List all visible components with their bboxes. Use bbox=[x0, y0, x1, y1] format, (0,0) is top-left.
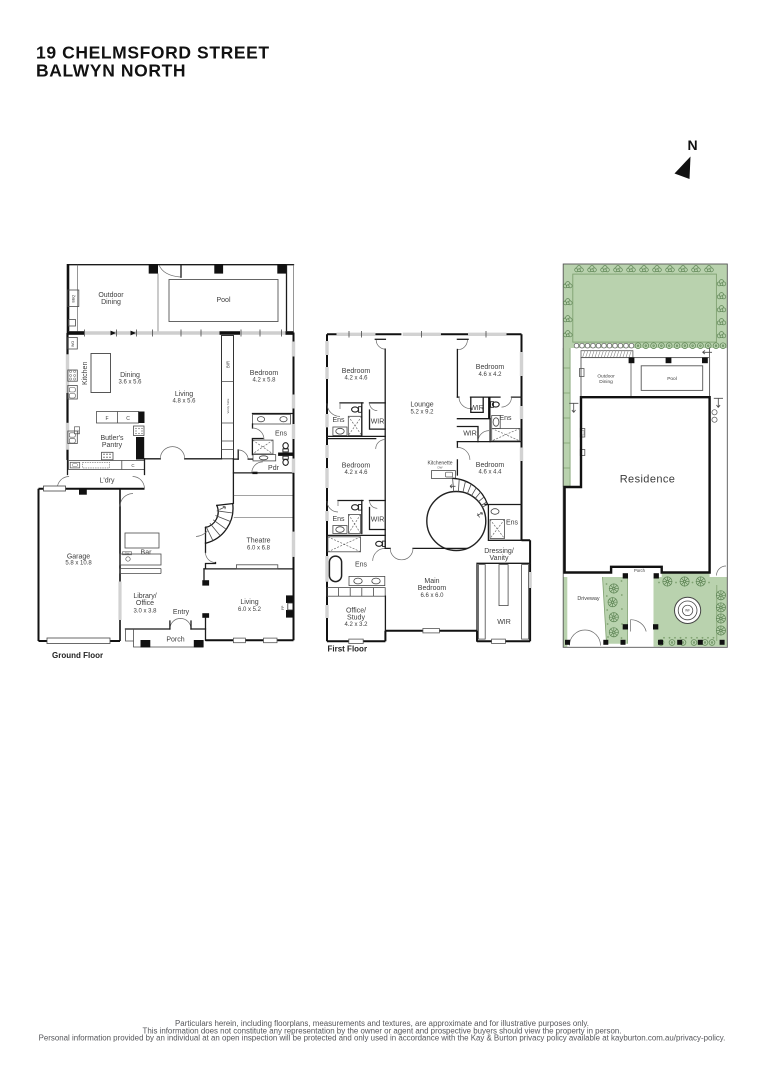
svg-text:Ens: Ens bbox=[275, 431, 288, 438]
svg-text:Library/: Library/ bbox=[133, 593, 156, 600]
svg-text:DW: DW bbox=[125, 551, 130, 555]
svg-text:Living: Living bbox=[240, 599, 258, 606]
svg-text:Ens: Ens bbox=[332, 516, 345, 523]
svg-text:WF: WF bbox=[685, 609, 690, 613]
svg-text:WIR: WIR bbox=[463, 430, 477, 437]
svg-text:Office/: Office/ bbox=[346, 607, 366, 614]
svg-text:4.6 x 4.2: 4.6 x 4.2 bbox=[478, 372, 502, 378]
svg-text:Dw: Dw bbox=[76, 430, 80, 434]
svg-text:Theatre: Theatre bbox=[246, 538, 270, 545]
svg-text:Butler's: Butler's bbox=[100, 435, 124, 442]
svg-text:3.6 x 5.6: 3.6 x 5.6 bbox=[118, 379, 142, 385]
svg-text:F: F bbox=[105, 416, 108, 422]
svg-text:4.8 x 5.6: 4.8 x 5.6 bbox=[172, 398, 196, 404]
svg-text:4.2 x 4.6: 4.2 x 4.6 bbox=[344, 470, 368, 476]
svg-text:WO: WO bbox=[71, 341, 75, 347]
svg-text:4.2 x 5.8: 4.2 x 5.8 bbox=[252, 377, 276, 383]
svg-text:Personal information provided: Personal information provided by an indi… bbox=[39, 1034, 726, 1043]
svg-text:Bedroom: Bedroom bbox=[342, 462, 371, 469]
svg-text:Study: Study bbox=[347, 614, 365, 621]
svg-text:N: N bbox=[687, 137, 697, 153]
svg-text:3.0 x 3.8: 3.0 x 3.8 bbox=[133, 609, 157, 615]
svg-text:Main: Main bbox=[424, 578, 439, 585]
svg-text:Outdoor: Outdoor bbox=[597, 374, 615, 380]
svg-text:Vanity: Vanity bbox=[490, 555, 509, 562]
svg-text:Dressing/: Dressing/ bbox=[484, 548, 514, 555]
svg-text:C: C bbox=[126, 416, 130, 422]
svg-text:BALWYN NORTH: BALWYN NORTH bbox=[36, 61, 186, 81]
svg-text:L'dry: L'dry bbox=[100, 478, 115, 485]
svg-text:Bedroom: Bedroom bbox=[342, 368, 371, 375]
svg-text:4.2 x 4.6: 4.2 x 4.6 bbox=[344, 376, 368, 382]
svg-text:6.0 x 5.2: 6.0 x 5.2 bbox=[238, 607, 262, 613]
svg-text:BIR: BIR bbox=[226, 361, 231, 368]
svg-text:Ens: Ens bbox=[499, 415, 512, 422]
svg-text:Porch: Porch bbox=[166, 637, 184, 644]
svg-text:WIR: WIR bbox=[371, 517, 385, 524]
svg-text:6.6 x 6.0: 6.6 x 6.0 bbox=[420, 593, 444, 599]
svg-text:Bar: Bar bbox=[141, 550, 153, 557]
svg-text:Dining: Dining bbox=[599, 379, 613, 385]
svg-text:WIR: WIR bbox=[371, 418, 385, 425]
svg-text:Bedroom: Bedroom bbox=[476, 364, 505, 371]
svg-text:Garage: Garage bbox=[67, 553, 90, 560]
svg-text:WIR: WIR bbox=[497, 619, 511, 626]
svg-text:Bedroom: Bedroom bbox=[476, 462, 505, 469]
svg-text:FP: FP bbox=[281, 605, 285, 610]
svg-text:Bedroom: Bedroom bbox=[418, 585, 447, 592]
svg-text:Office: Office bbox=[136, 600, 154, 607]
svg-text:Living: Living bbox=[175, 391, 193, 398]
svg-text:C: C bbox=[131, 463, 134, 468]
svg-text:Pdr: Pdr bbox=[268, 465, 280, 472]
svg-text:DW: DW bbox=[438, 466, 443, 470]
svg-text:Ground Floor: Ground Floor bbox=[52, 651, 103, 660]
svg-text:Bedroom: Bedroom bbox=[250, 370, 279, 377]
svg-text:Driveway: Driveway bbox=[577, 596, 599, 602]
svg-text:Pool: Pool bbox=[216, 297, 230, 304]
svg-text:Dining: Dining bbox=[120, 372, 140, 379]
svg-text:5.2 x 9.2: 5.2 x 9.2 bbox=[410, 410, 434, 416]
svg-text:4.2 x 3.2: 4.2 x 3.2 bbox=[344, 622, 368, 628]
svg-text:Residence: Residence bbox=[620, 474, 676, 486]
svg-text:Lounge: Lounge bbox=[410, 402, 433, 409]
svg-text:Dining: Dining bbox=[101, 299, 121, 306]
svg-text:Kitchen: Kitchen bbox=[82, 362, 89, 385]
svg-text:Entry: Entry bbox=[173, 609, 190, 616]
svg-text:First Floor: First Floor bbox=[328, 645, 368, 654]
svg-text:Porch: Porch bbox=[634, 568, 646, 573]
svg-text:Ens: Ens bbox=[355, 561, 368, 568]
svg-text:Ens: Ens bbox=[506, 520, 519, 527]
svg-text:WIR: WIR bbox=[470, 405, 484, 412]
svg-text:19 CHELMSFORD STREET: 19 CHELMSFORD STREET bbox=[36, 43, 270, 63]
svg-text:6.0 x 6.8: 6.0 x 6.8 bbox=[247, 546, 271, 552]
svg-text:Pantry: Pantry bbox=[102, 442, 123, 449]
svg-text:4.6 x 4.4: 4.6 x 4.4 bbox=[478, 469, 502, 475]
svg-text:Vanity Table: Vanity Table bbox=[226, 398, 230, 413]
svg-text:5.8 x 10.8: 5.8 x 10.8 bbox=[65, 561, 92, 567]
svg-text:BBQ: BBQ bbox=[72, 295, 76, 303]
svg-text:Ens: Ens bbox=[332, 417, 345, 424]
svg-text:Pool: Pool bbox=[667, 376, 677, 382]
